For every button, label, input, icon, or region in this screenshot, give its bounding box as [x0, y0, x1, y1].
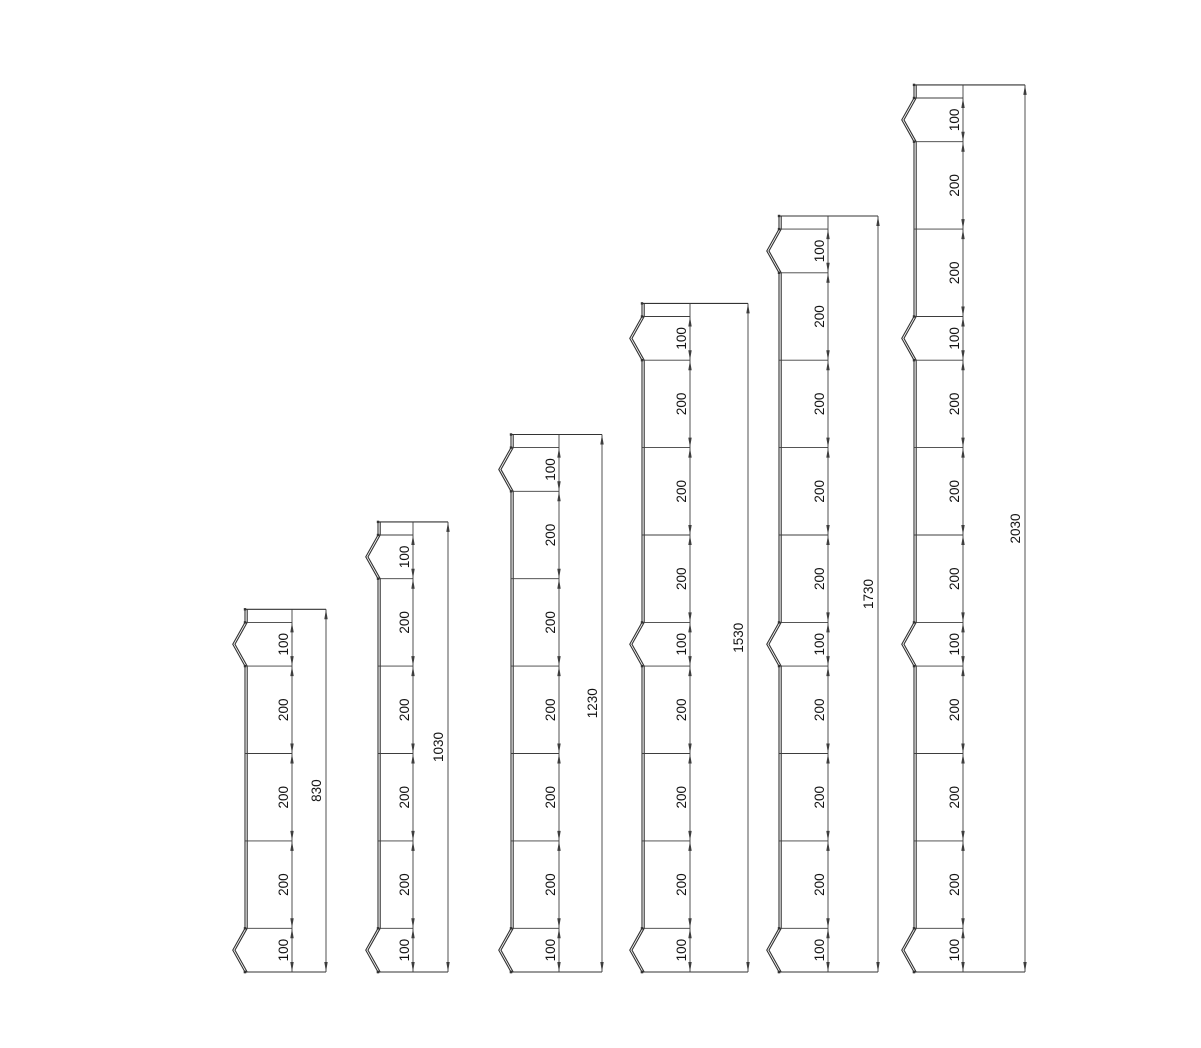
segment-dim-label: 200	[812, 567, 827, 590]
dim-arrow	[557, 569, 560, 579]
segment-dim-label: 100	[947, 109, 962, 132]
dim-arrow	[826, 360, 829, 370]
dim-arrow	[688, 360, 691, 370]
dim-arrow	[600, 962, 603, 972]
segment-dim-label: 200	[947, 393, 962, 416]
joint-dot	[641, 665, 643, 667]
dim-arrow	[324, 609, 327, 619]
dim-arrow	[557, 841, 560, 851]
segment-dim-label: 200	[674, 873, 689, 896]
dim-arrow	[324, 962, 327, 972]
joint-dot	[244, 927, 246, 929]
segment-dim-label: 200	[812, 786, 827, 809]
dim-arrow	[411, 754, 414, 764]
overall-dim-label: 2030	[1008, 513, 1023, 543]
dim-arrow	[826, 962, 829, 972]
dim-arrow	[961, 350, 964, 360]
dim-arrow	[688, 962, 691, 972]
segment-dim-label: 200	[397, 873, 412, 896]
joint-dot	[510, 971, 512, 973]
dim-arrow	[557, 448, 560, 458]
joint-dot	[641, 621, 643, 623]
joint-dot	[913, 315, 915, 317]
profile-outer-line	[767, 216, 779, 972]
segment-dim-label: 100	[276, 633, 291, 656]
joint-dot	[377, 578, 379, 580]
segment-dim-label: 200	[674, 786, 689, 809]
dim-arrow	[688, 350, 691, 360]
segment-dim-label: 100	[674, 939, 689, 962]
dim-arrow	[411, 569, 414, 579]
dim-arrow	[961, 525, 964, 535]
dim-arrow	[826, 612, 829, 622]
segment-dim-label: 200	[674, 480, 689, 503]
segment-dim-label: 200	[812, 480, 827, 503]
dim-arrow	[961, 219, 964, 229]
dim-arrow	[688, 438, 691, 448]
segment-dim-label: 200	[947, 873, 962, 896]
pale-1230: 1002002002002002001001230	[499, 433, 604, 973]
dim-arrow	[826, 656, 829, 666]
dim-arrow	[290, 666, 293, 676]
dim-arrow	[557, 656, 560, 666]
dim-arrow	[688, 831, 691, 841]
dim-arrow	[826, 229, 829, 239]
dim-arrow	[826, 754, 829, 764]
segment-dim-label: 100	[397, 939, 412, 962]
dim-arrow	[557, 491, 560, 501]
pale-1030: 1002002002002001001030	[366, 521, 450, 974]
dim-arrow	[961, 142, 964, 152]
dim-arrow	[688, 666, 691, 676]
dim-arrow	[961, 918, 964, 928]
profile-outer-line	[499, 434, 511, 972]
dim-arrow	[1023, 85, 1026, 95]
dim-arrow	[557, 579, 560, 589]
dim-arrow	[688, 612, 691, 622]
dim-arrow	[411, 656, 414, 666]
joint-dot	[778, 665, 780, 667]
dim-arrow	[557, 744, 560, 754]
dim-arrow	[826, 263, 829, 273]
dim-arrow	[826, 535, 829, 545]
segment-dim-label: 200	[276, 786, 291, 809]
segment-dim-label: 100	[276, 939, 291, 962]
joint-dot	[778, 621, 780, 623]
pale-830: 100200200200100830	[233, 608, 328, 973]
segment-dim-label: 200	[812, 305, 827, 328]
dim-arrow	[557, 918, 560, 928]
dim-arrow	[411, 841, 414, 851]
dim-arrow	[411, 962, 414, 972]
segment-dim-label: 200	[947, 567, 962, 590]
segment-dim-label: 200	[812, 699, 827, 722]
segment-dim-label: 200	[947, 786, 962, 809]
joint-dot	[244, 665, 246, 667]
segment-dim-label: 200	[543, 524, 558, 547]
dim-arrow	[411, 666, 414, 676]
dim-arrow	[688, 928, 691, 938]
profile-outer-line	[366, 522, 378, 972]
joint-dot	[913, 84, 915, 86]
segment-dim-label: 100	[674, 633, 689, 656]
dim-arrow	[826, 448, 829, 458]
joint-dot	[913, 971, 915, 973]
overall-dim-label: 830	[309, 779, 324, 802]
dim-arrow	[411, 744, 414, 754]
segment-dim-label: 100	[543, 458, 558, 481]
joint-dot	[778, 971, 780, 973]
joint-dot	[377, 534, 379, 536]
joint-dot	[778, 228, 780, 230]
joint-dot	[510, 446, 512, 448]
dim-arrow	[290, 656, 293, 666]
drawing-canvas: 1002002002001008301002002002002001001030…	[0, 0, 1201, 1048]
dim-arrow	[688, 448, 691, 458]
dim-arrow	[290, 622, 293, 632]
dim-arrow	[290, 962, 293, 972]
dim-arrow	[290, 831, 293, 841]
dim-arrow	[557, 928, 560, 938]
dim-arrow	[826, 622, 829, 632]
joint-dot	[913, 621, 915, 623]
joint-dot	[913, 665, 915, 667]
dim-arrow	[411, 928, 414, 938]
dim-arrow	[290, 918, 293, 928]
dim-arrow	[600, 434, 603, 444]
dim-arrow	[961, 744, 964, 754]
segment-dim-label: 100	[397, 546, 412, 569]
pale-1530: 1002002002001002002002001001530	[630, 302, 750, 973]
dim-arrow	[876, 962, 879, 972]
profile-outer-line	[902, 85, 914, 972]
joint-dot	[641, 359, 643, 361]
dim-arrow	[557, 831, 560, 841]
dim-arrow	[961, 754, 964, 764]
segment-dim-label: 200	[397, 611, 412, 634]
segment-dim-label: 200	[397, 699, 412, 722]
profile-outer-line	[233, 609, 245, 972]
segment-dim-label: 200	[543, 873, 558, 896]
joint-dot	[641, 302, 643, 304]
segment-dim-label: 200	[276, 873, 291, 896]
dim-arrow	[826, 831, 829, 841]
dim-arrow	[688, 754, 691, 764]
segment-dim-label: 100	[674, 327, 689, 350]
segment-dim-label: 200	[543, 786, 558, 809]
dim-arrow	[688, 525, 691, 535]
segment-dim-label: 100	[812, 633, 827, 656]
segment-dim-label: 200	[543, 699, 558, 722]
dim-arrow	[290, 744, 293, 754]
dim-arrow	[961, 831, 964, 841]
dim-arrow	[557, 754, 560, 764]
dim-arrow	[826, 744, 829, 754]
segment-dim-label: 200	[812, 393, 827, 416]
joint-dot	[778, 272, 780, 274]
dim-arrow	[746, 303, 749, 313]
dim-arrow	[961, 317, 964, 327]
joint-dot	[377, 521, 379, 523]
dim-arrow	[876, 216, 879, 226]
joint-dot	[641, 315, 643, 317]
overall-dim-label: 1230	[585, 688, 600, 718]
dim-arrow	[961, 612, 964, 622]
dim-arrow	[961, 229, 964, 239]
segment-dim-label: 200	[947, 174, 962, 197]
dim-arrow	[961, 962, 964, 972]
dim-arrow	[826, 350, 829, 360]
dim-arrow	[826, 928, 829, 938]
dim-arrow	[961, 622, 964, 632]
joint-dot	[244, 608, 246, 610]
segment-dim-label: 100	[812, 939, 827, 962]
overall-dim-label: 1530	[731, 623, 746, 653]
joint-dot	[778, 215, 780, 217]
segment-dim-label: 200	[947, 480, 962, 503]
dim-arrow	[688, 841, 691, 851]
technical-drawing: 1002002002001008301002002002002001001030…	[0, 0, 1201, 1048]
joint-dot	[778, 927, 780, 929]
dim-arrow	[961, 360, 964, 370]
pale-1730: 1002002002002001002002002001001730	[767, 215, 880, 973]
joint-dot	[244, 621, 246, 623]
overall-dim-label: 1030	[431, 732, 446, 762]
joint-dot	[510, 927, 512, 929]
dim-arrow	[446, 962, 449, 972]
dim-arrow	[557, 481, 560, 491]
dim-arrow	[411, 831, 414, 841]
overall-dim-label: 1730	[861, 579, 876, 609]
segment-dim-label: 200	[947, 262, 962, 285]
segment-dim-label: 100	[947, 939, 962, 962]
dim-arrow	[688, 317, 691, 327]
joint-dot	[377, 927, 379, 929]
dim-arrow	[826, 666, 829, 676]
joint-dot	[913, 359, 915, 361]
joint-dot	[510, 490, 512, 492]
dim-arrow	[961, 656, 964, 666]
dim-arrow	[961, 307, 964, 317]
segment-dim-label: 200	[674, 699, 689, 722]
dim-arrow	[688, 918, 691, 928]
dim-arrow	[826, 273, 829, 283]
dim-arrow	[557, 962, 560, 972]
segment-dim-label: 200	[674, 393, 689, 416]
dim-arrow	[746, 962, 749, 972]
segment-dim-label: 100	[812, 240, 827, 263]
dim-arrow	[961, 132, 964, 142]
dim-arrow	[557, 666, 560, 676]
joint-dot	[510, 433, 512, 435]
dim-arrow	[961, 98, 964, 108]
dim-arrow	[961, 928, 964, 938]
joint-dot	[913, 141, 915, 143]
dim-arrow	[826, 525, 829, 535]
joint-dot	[244, 971, 246, 973]
dim-arrow	[446, 522, 449, 532]
dim-arrow	[290, 754, 293, 764]
joint-dot	[913, 97, 915, 99]
joint-dot	[641, 927, 643, 929]
dim-arrow	[961, 438, 964, 448]
segment-dim-label: 200	[397, 786, 412, 809]
dim-arrow	[688, 535, 691, 545]
joint-dot	[641, 971, 643, 973]
dim-arrow	[688, 744, 691, 754]
pale-2030: 1002002001002002002001002002002001002030	[902, 84, 1027, 974]
dim-arrow	[290, 928, 293, 938]
joint-dot	[913, 927, 915, 929]
dim-arrow	[688, 622, 691, 632]
segment-dim-label: 200	[674, 567, 689, 590]
dim-arrow	[826, 918, 829, 928]
dim-arrow	[688, 656, 691, 666]
segment-dim-label: 100	[543, 939, 558, 962]
segment-dim-label: 200	[812, 873, 827, 896]
segment-dim-label: 100	[947, 633, 962, 656]
segment-dim-label: 100	[947, 327, 962, 350]
dim-arrow	[961, 666, 964, 676]
segment-dim-label: 200	[276, 699, 291, 722]
dim-arrow	[961, 448, 964, 458]
dim-arrow	[826, 438, 829, 448]
segment-dim-label: 200	[543, 611, 558, 634]
dim-arrow	[1023, 962, 1026, 972]
dim-arrow	[290, 841, 293, 851]
dim-arrow	[411, 918, 414, 928]
segment-dim-label: 200	[947, 699, 962, 722]
dim-arrow	[411, 535, 414, 545]
dim-arrow	[411, 579, 414, 589]
dim-arrow	[961, 535, 964, 545]
joint-dot	[377, 971, 379, 973]
dim-arrow	[826, 841, 829, 851]
dim-arrow	[961, 841, 964, 851]
